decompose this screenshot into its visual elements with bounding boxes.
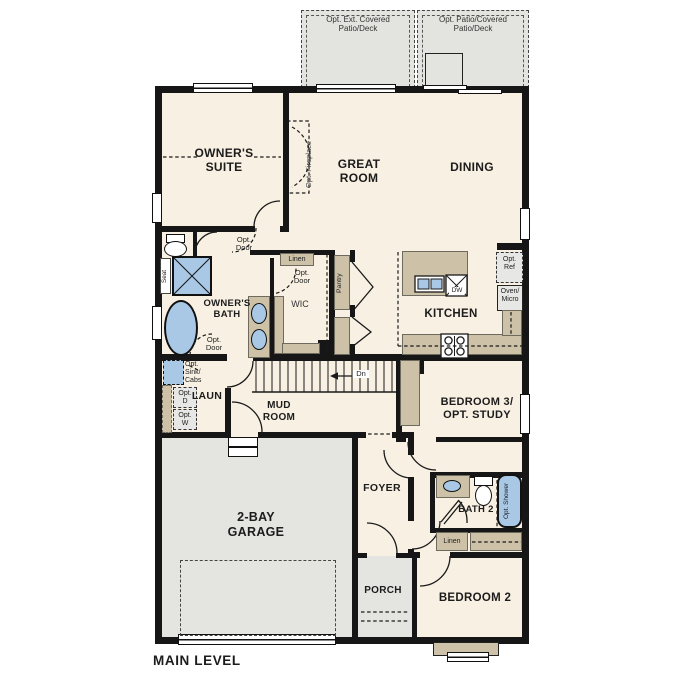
down-label: Dn	[353, 370, 369, 378]
wall	[396, 437, 406, 442]
foyer-label: FOYER	[356, 482, 408, 494]
garage-label: 2-BAY GARAGE	[200, 510, 312, 540]
kitchen-counter	[502, 310, 522, 336]
kitchen-label: KITCHEN	[410, 308, 492, 322]
wall	[396, 553, 412, 558]
wall	[352, 432, 366, 438]
window	[520, 208, 530, 240]
wall	[162, 226, 255, 232]
garage-bay-outline	[180, 560, 336, 636]
wic-shelf	[282, 343, 320, 354]
window	[152, 193, 162, 223]
shower	[172, 256, 212, 296]
bay-window	[447, 652, 489, 662]
wall	[253, 354, 524, 361]
owners-suite-label: OWNER'S SUITE	[165, 146, 283, 174]
pantry-label: Pantry	[336, 260, 344, 306]
bedroom2-label: BEDROOM 2	[426, 592, 524, 606]
bedroom3-closet-shelf	[400, 360, 420, 426]
opt-door-label: Opt. Door	[196, 336, 232, 353]
great-room-label: GREAT ROOM	[313, 157, 405, 185]
sliding-door	[458, 89, 502, 94]
opt-shower-label: Opt. Shower	[503, 477, 510, 525]
wall	[280, 226, 289, 232]
wall	[193, 232, 197, 256]
laundry-label: LAUN	[188, 390, 226, 402]
wall	[430, 472, 435, 528]
patio-left-label: Opt. Ext. Covered Patio/Deck	[302, 16, 414, 34]
wall	[497, 243, 524, 250]
wall	[350, 305, 355, 317]
opt-fireplace-label: Opt. Fireplace	[305, 128, 313, 200]
window	[193, 83, 253, 93]
laundry-cabinet	[162, 385, 172, 433]
toilet	[164, 241, 187, 257]
owners-bath-label: OWNER'S BATH	[198, 298, 256, 320]
opt-sink-cabs-label: Opt. Sink/ Cabs	[185, 361, 217, 384]
seat-label: Seat	[161, 262, 168, 291]
bath2-sink	[443, 480, 461, 492]
oven-micro-box: Oven/ Micro	[497, 285, 523, 311]
window	[316, 84, 396, 93]
wall	[412, 556, 417, 644]
dining-label: DINING	[426, 160, 518, 174]
window	[152, 306, 162, 340]
dishwasher-label: DW	[449, 287, 465, 294]
kitchen-counter	[402, 334, 522, 355]
wall	[436, 437, 524, 442]
floor-plan: Opt. Ext. Covered Patio/Deck Opt. Patio/…	[0, 0, 687, 687]
toilet	[475, 485, 492, 506]
wall	[283, 93, 289, 232]
linen-shelf-label: Linen	[280, 253, 314, 266]
wall	[350, 250, 355, 262]
linen-closet-label: Linen	[436, 532, 468, 551]
vanity-sink	[251, 329, 267, 350]
pantry-shelf	[334, 317, 350, 355]
bedroom2-closet-shelf	[470, 532, 522, 551]
patio-step	[425, 53, 463, 87]
laundry-sink	[163, 360, 184, 385]
wall	[420, 360, 424, 374]
wall	[408, 437, 414, 455]
opt-washer-box: Opt. W	[173, 409, 197, 430]
wall	[357, 553, 367, 558]
bedroom3-label: BEDROOM 3/ OPT. STUDY	[428, 396, 526, 422]
wall	[258, 432, 356, 438]
wall	[352, 432, 358, 638]
wall	[408, 477, 414, 521]
mud-room-label: MUD ROOM	[248, 400, 310, 424]
bathtub	[164, 300, 198, 356]
patio-right-label: Opt. Patio/Covered Patio/Deck	[418, 16, 528, 34]
main-level-title: MAIN LEVEL	[153, 653, 273, 669]
bath2-label: BATH 2	[452, 504, 500, 515]
opt-door-label: Opt. Door	[226, 236, 262, 253]
garage-steps-tread	[229, 446, 257, 448]
wic-label: WIC	[282, 299, 318, 309]
opt-ref-box: Opt. Ref	[496, 252, 523, 283]
wall	[450, 552, 524, 558]
porch-label: PORCH	[356, 585, 410, 597]
opt-door-label: Opt. Door	[284, 269, 320, 286]
patio-left-area: Opt. Ext. Covered Patio/Deck	[301, 10, 415, 88]
